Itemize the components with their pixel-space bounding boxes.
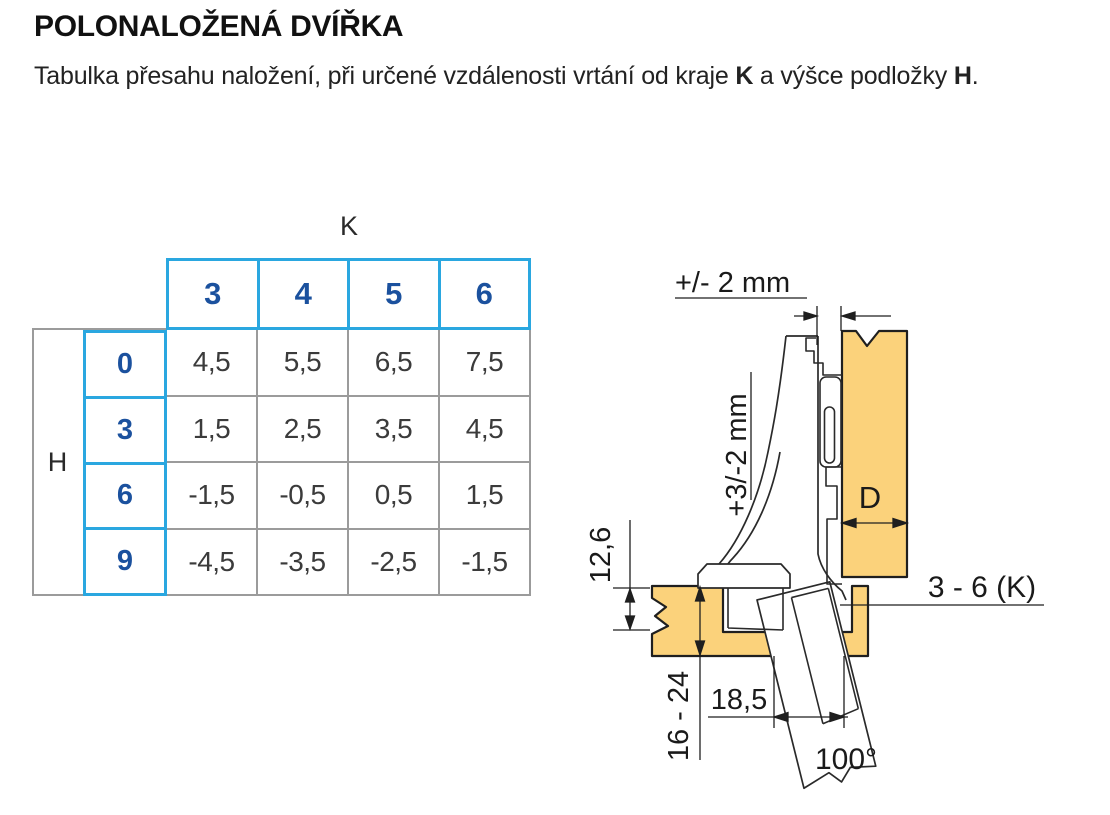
mounting-plate xyxy=(806,338,842,584)
arrowhead xyxy=(626,589,635,602)
table-cell: 5,5 xyxy=(258,330,347,395)
dim-label-height-adjustment: +3/-2 mm xyxy=(721,393,753,516)
table-cell: 4,5 xyxy=(167,330,256,395)
arrowhead xyxy=(804,312,817,320)
row-header-h6: 6 xyxy=(86,465,164,528)
table-cell: -1,5 xyxy=(440,530,529,595)
col-header-k6: 6 xyxy=(441,261,529,327)
mounting-plate-bottom-steps xyxy=(826,467,842,584)
dim-cup-depth xyxy=(613,520,650,630)
dim-label-overlay: 3 - 6 (K) xyxy=(928,571,1036,604)
table-cell: 3,5 xyxy=(349,397,438,462)
row-header-h9: 9 xyxy=(86,530,164,593)
table-data-grid: 4,5 5,5 6,5 7,5 1,5 2,5 3,5 4,5 -1,5 -0,… xyxy=(167,330,529,594)
dim-label-door-thickness: 16 - 24 xyxy=(663,671,695,761)
table-cell: -0,5 xyxy=(258,463,347,528)
table-h-axis-label: H xyxy=(32,330,83,594)
arrowhead xyxy=(626,616,635,629)
mounting-plate-top-steps xyxy=(806,338,842,375)
dim-label-depth-adjustment: +/- 2 mm xyxy=(675,267,790,299)
table-cell: 4,5 xyxy=(440,397,529,462)
side-panel-wood xyxy=(842,331,907,577)
table-cell: -1,5 xyxy=(167,463,256,528)
table-row-header-column: 0 3 6 9 xyxy=(83,330,167,596)
table-cell: -3,5 xyxy=(258,530,347,595)
table-cell: 2,5 xyxy=(258,397,347,462)
table-cell: 6,5 xyxy=(349,330,438,395)
col-header-k5: 5 xyxy=(350,261,438,327)
dim-label-panel-depth: D xyxy=(859,480,881,515)
table-cell: 7,5 xyxy=(440,330,529,395)
mounting-plate-body xyxy=(820,377,841,467)
row-header-h3: 3 xyxy=(86,399,164,462)
dim-label-cup-depth: 12,6 xyxy=(585,527,617,583)
dim-label-opening-angle: 100° xyxy=(815,743,877,776)
table-cell: 1,5 xyxy=(167,397,256,462)
col-header-k4: 4 xyxy=(260,261,348,327)
row-header-h0: 0 xyxy=(86,333,164,396)
table-cell: -4,5 xyxy=(167,530,256,595)
table-cell: 0,5 xyxy=(349,463,438,528)
arrowhead xyxy=(842,312,855,320)
arrowhead xyxy=(774,713,788,722)
table-cell: -2,5 xyxy=(349,530,438,595)
table-column-header-row: 3 4 5 6 xyxy=(166,258,531,330)
hinge-cup-flange xyxy=(698,564,790,588)
table-cell: 1,5 xyxy=(440,463,529,528)
col-header-k3: 3 xyxy=(169,261,257,327)
dim-label-cup-distance: 18,5 xyxy=(711,684,767,716)
